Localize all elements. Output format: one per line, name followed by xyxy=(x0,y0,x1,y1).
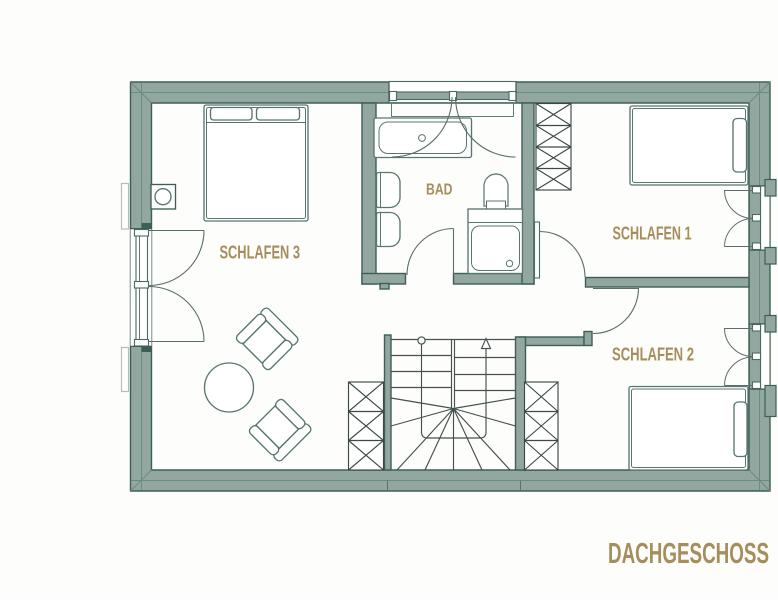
svg-text:SCHLAFEN 2: SCHLAFEN 2 xyxy=(612,344,694,365)
svg-text:DACHGESCHOSS: DACHGESCHOSS xyxy=(608,538,769,570)
svg-text:SCHLAFEN 3: SCHLAFEN 3 xyxy=(220,242,301,263)
svg-text:BAD: BAD xyxy=(426,182,453,199)
svg-text:SCHLAFEN 1: SCHLAFEN 1 xyxy=(613,223,692,244)
